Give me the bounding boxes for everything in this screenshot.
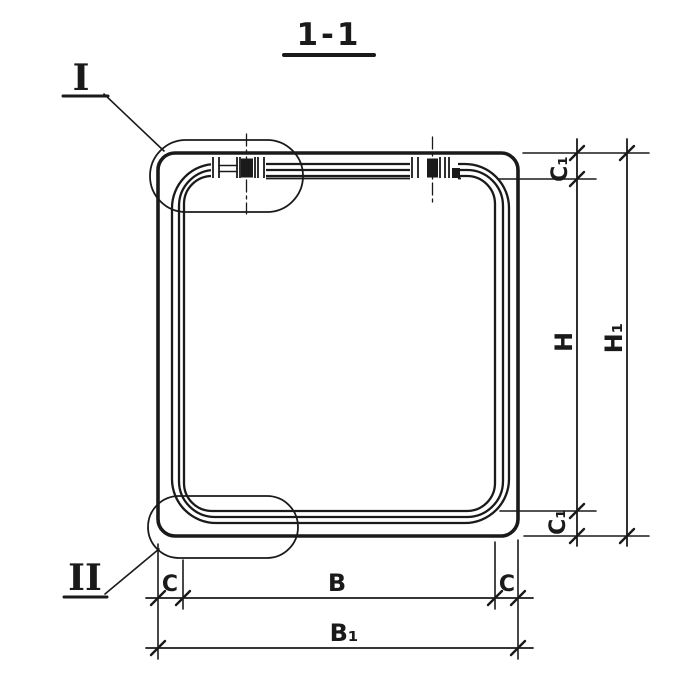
view-title: 1-1 — [284, 17, 374, 55]
detail-label-ii: II — [68, 557, 102, 599]
dim-label-c-right: C — [499, 572, 515, 597]
detail-boundary-ii — [148, 496, 298, 558]
inner-contour-outer — [172, 164, 509, 523]
dimension-right-outer: H₁ — [600, 139, 634, 546]
inner-contour-middle — [179, 170, 503, 517]
dim-label-c-left: C — [162, 572, 178, 597]
outer-contour — [158, 153, 518, 536]
technical-drawing-canvas: I II C B C B₁ C₁ — [0, 0, 700, 700]
dim-label-h: H — [550, 332, 578, 352]
top-joint-right — [410, 157, 460, 180]
joint-key-fill-small — [452, 168, 460, 178]
dim-label-c1-bottom: C₁ — [546, 509, 571, 535]
dim-label-b: B — [328, 569, 346, 597]
dim-label-h1: H₁ — [600, 323, 628, 354]
drawing-sheet: I II C B C B₁ C₁ — [0, 0, 700, 700]
detail-leader-i — [104, 94, 164, 151]
section-title: 1-1 — [296, 17, 361, 53]
dim-label-c1-top: C₁ — [548, 156, 573, 182]
top-joint-left — [211, 157, 266, 180]
detail-label-i: I — [73, 57, 90, 99]
dimension-bottom-outer: B₁ — [146, 619, 533, 655]
section-body — [172, 164, 509, 523]
detail-leader-ii — [105, 549, 159, 594]
inner-contour-inner — [184, 176, 495, 511]
dim-label-b1: B₁ — [330, 619, 359, 647]
